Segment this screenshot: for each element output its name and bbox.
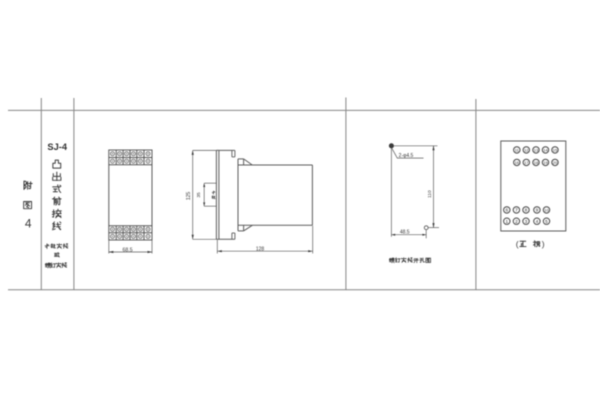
svg-text:12: 12 [524, 147, 529, 152]
svg-text:3: 3 [525, 219, 528, 225]
svg-text:): ) [542, 239, 545, 249]
svg-text:128: 128 [256, 246, 265, 252]
svg-text:9: 9 [536, 208, 539, 214]
svg-text:4: 4 [536, 219, 539, 225]
svg-text:110: 110 [427, 190, 433, 198]
svg-text:6: 6 [505, 208, 508, 214]
svg-text:48.5: 48.5 [400, 230, 410, 236]
svg-text:35: 35 [196, 192, 202, 198]
svg-text:14: 14 [543, 147, 548, 152]
svg-text:4: 4 [25, 217, 32, 231]
svg-text:125: 125 [186, 192, 192, 201]
svg-text:SJ-4: SJ-4 [47, 142, 67, 152]
svg-text:8: 8 [525, 208, 528, 214]
svg-text:1: 1 [505, 219, 508, 225]
svg-text:(: ( [516, 239, 519, 249]
svg-text:20: 20 [553, 160, 558, 165]
svg-text:7: 7 [515, 208, 518, 214]
svg-text:68.5: 68.5 [123, 247, 133, 253]
svg-text:16: 16 [515, 160, 520, 165]
svg-text:13: 13 [534, 147, 539, 152]
svg-text:19: 19 [543, 160, 548, 165]
svg-text:2-φ4.5: 2-φ4.5 [399, 153, 414, 159]
svg-text:10: 10 [544, 207, 549, 212]
svg-text:5: 5 [545, 219, 548, 225]
svg-text:15: 15 [553, 147, 558, 152]
svg-text:2: 2 [515, 219, 518, 225]
svg-text:18: 18 [534, 160, 539, 165]
svg-text:17: 17 [524, 160, 529, 165]
